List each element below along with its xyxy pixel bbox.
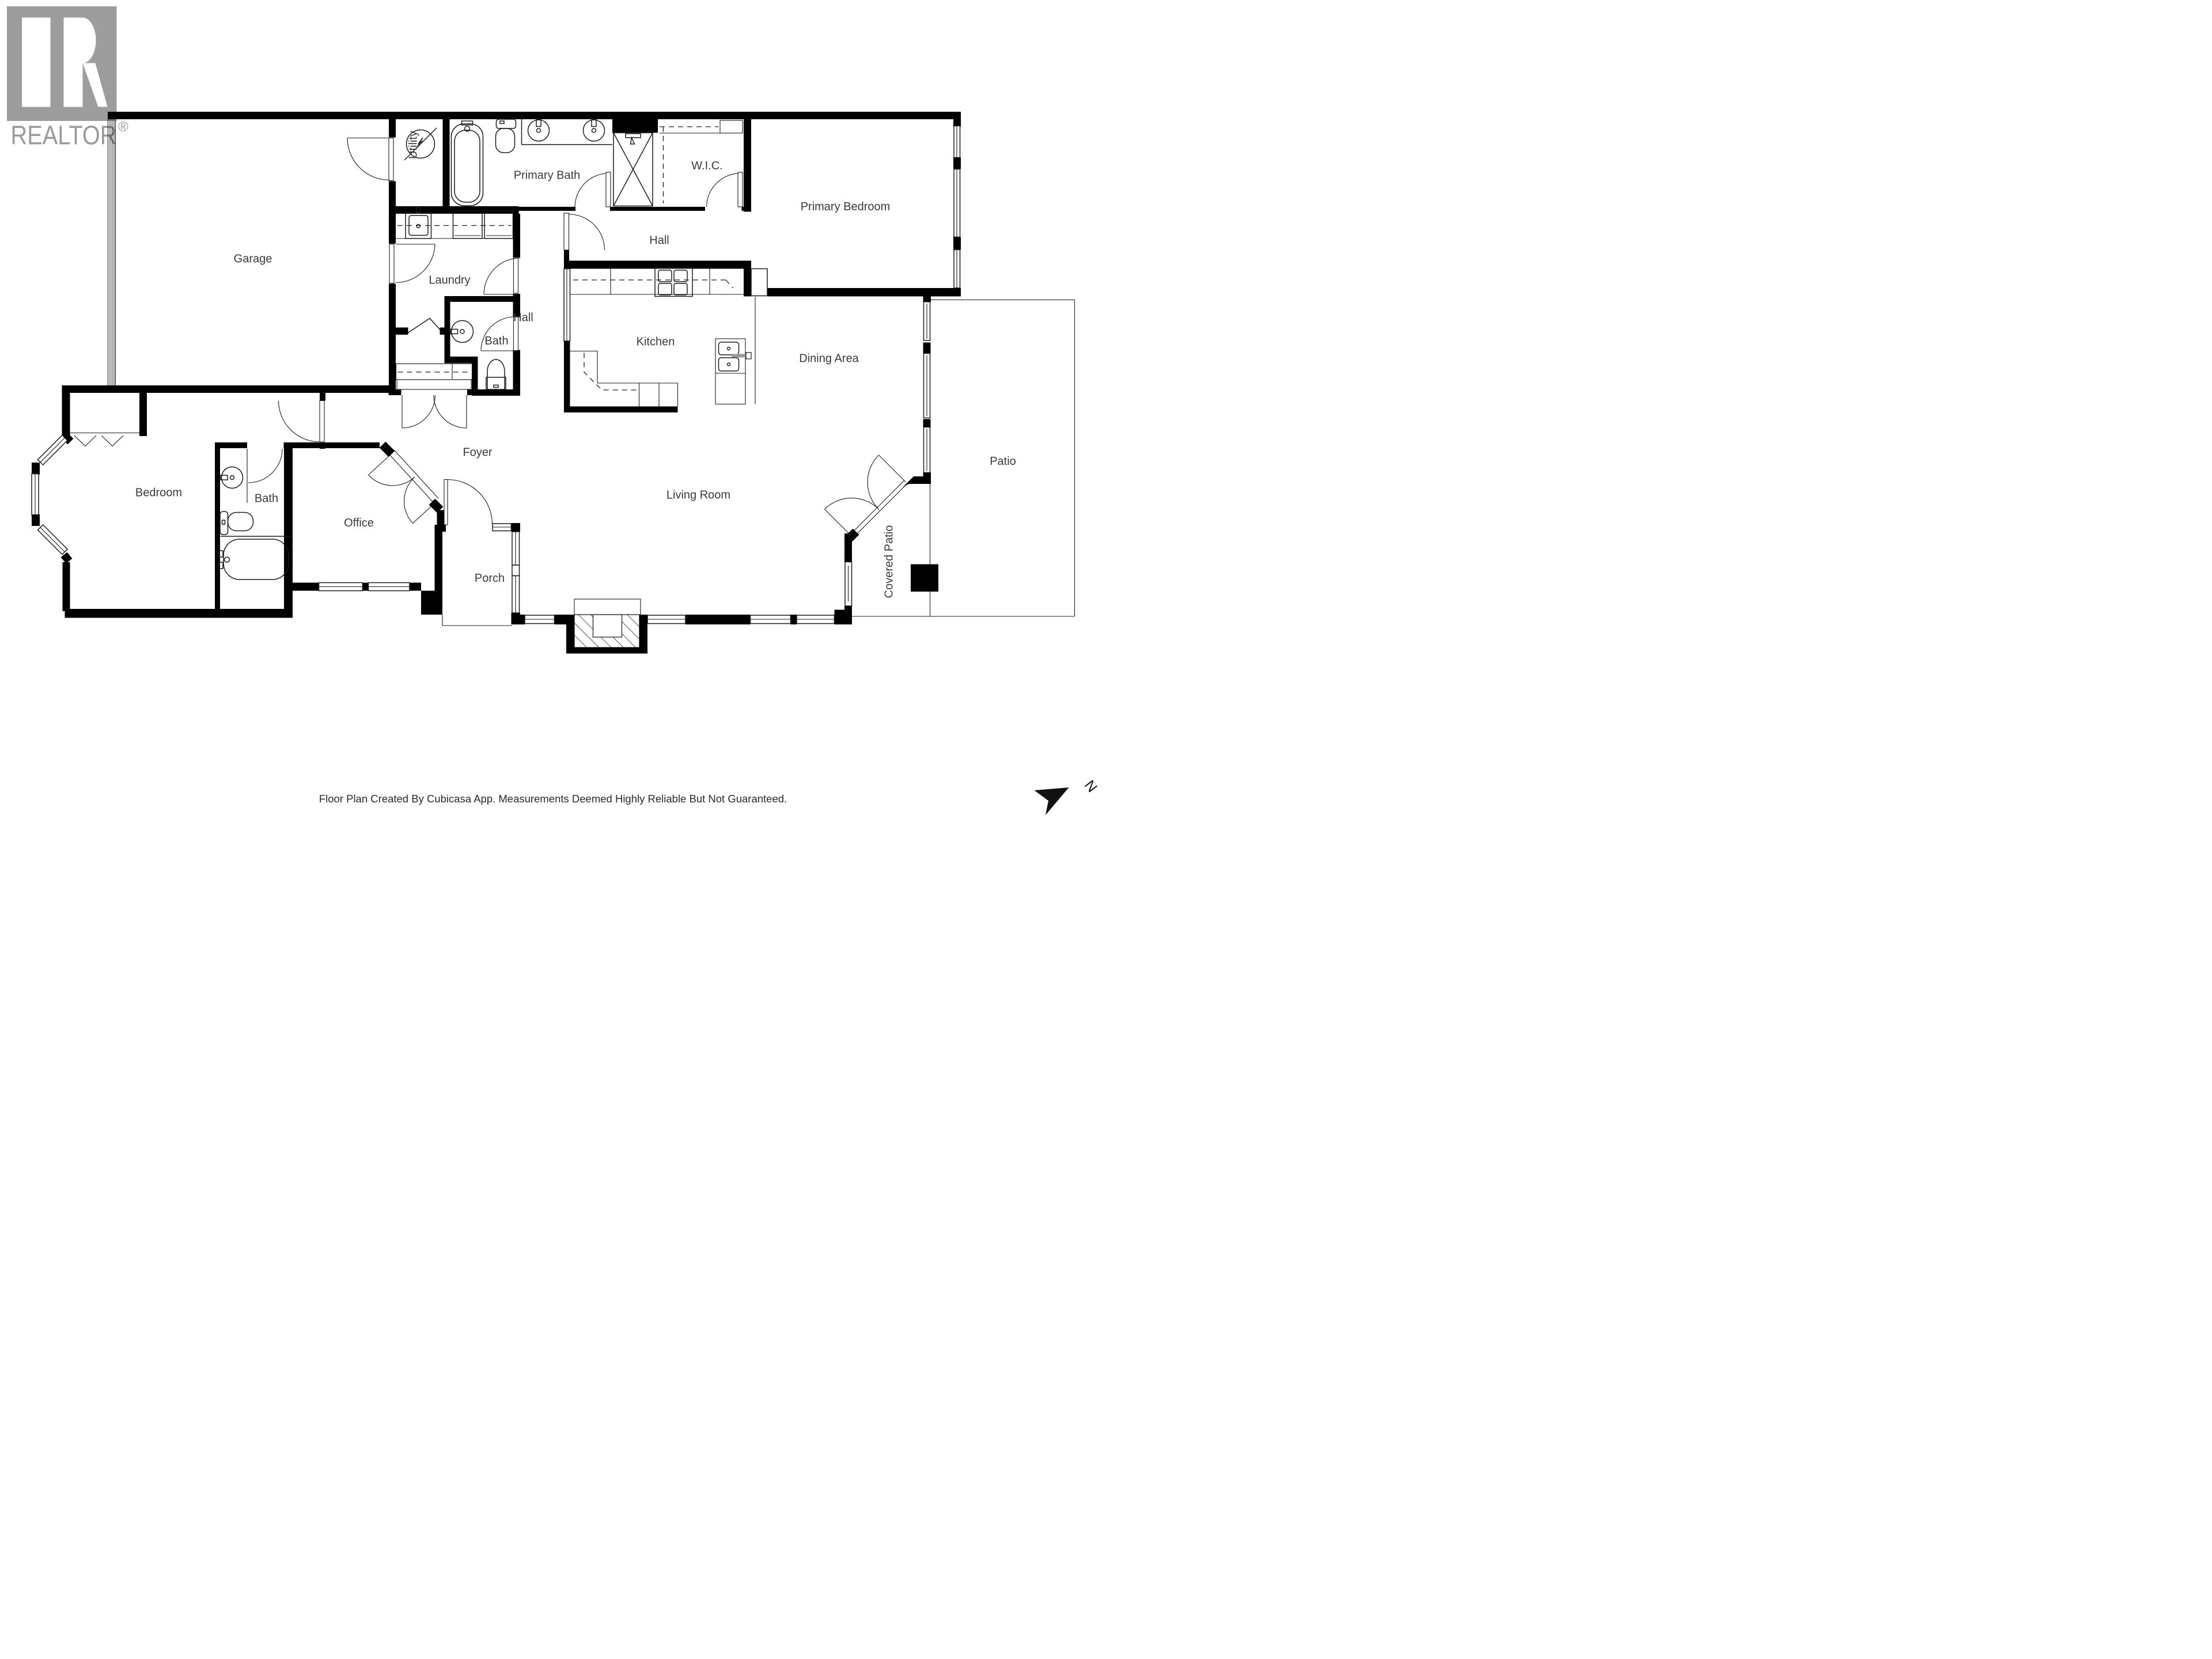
svg-text:Laundry: Laundry [429,274,470,287]
svg-text:Porch: Porch [475,572,505,585]
svg-text:Covered Patio: Covered Patio [883,525,896,599]
svg-text:Hall: Hall [649,234,669,247]
svg-text:Living Room: Living Room [666,489,730,502]
svg-text:Bath: Bath [255,493,278,505]
svg-text:Bedroom: Bedroom [135,487,182,499]
svg-text:Bath: Bath [484,335,508,347]
svg-text:Kitchen: Kitchen [637,336,675,349]
svg-text:®: ® [118,119,128,135]
svg-text:Office: Office [344,517,374,529]
svg-text:Floor Plan Created By Cubicasa: Floor Plan Created By Cubicasa App. Meas… [319,793,787,805]
svg-text:Dining Area: Dining Area [799,353,859,365]
svg-text:Utility: Utility [407,131,420,159]
svg-text:Primary Bath: Primary Bath [514,169,581,182]
svg-text:Garage: Garage [234,253,272,266]
svg-text:W.I.C.: W.I.C. [691,160,722,172]
svg-text:Foyer: Foyer [463,446,492,459]
svg-text:REALTOR: REALTOR [11,120,117,150]
svg-text:Primary Bedroom: Primary Bedroom [801,200,891,213]
svg-text:Patio: Patio [990,455,1016,468]
svg-text:Hall: Hall [513,312,533,324]
